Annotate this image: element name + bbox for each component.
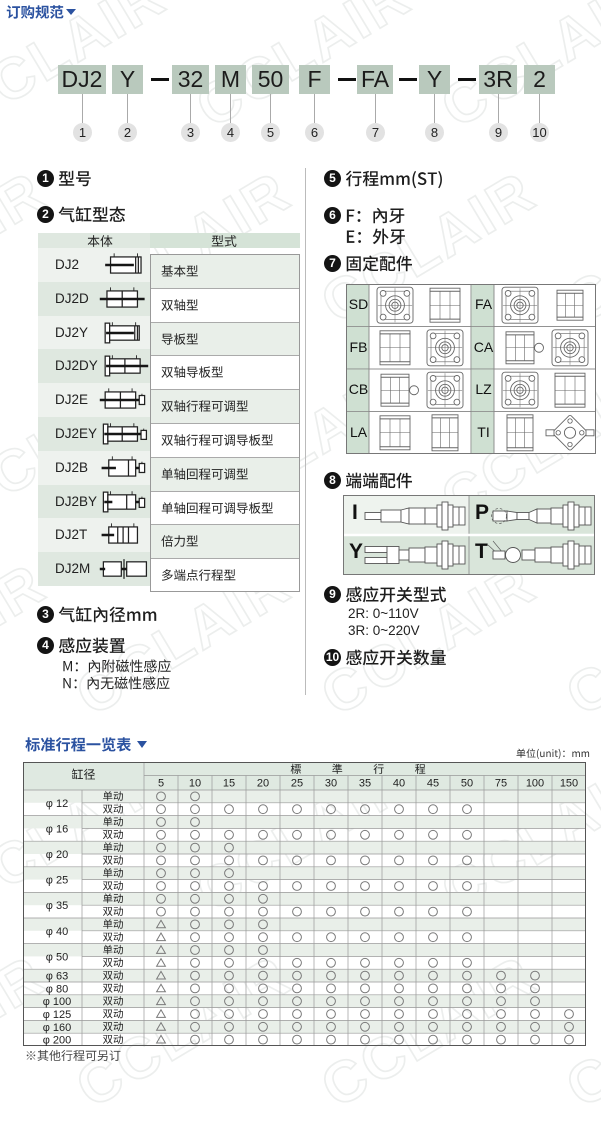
svg-text:φ 100: φ 100 — [43, 996, 72, 1008]
svg-text:φ 50: φ 50 — [46, 951, 68, 963]
svg-text:30: 30 — [325, 778, 337, 790]
svg-text:φ 80: φ 80 — [46, 983, 68, 995]
svg-text:φ 125: φ 125 — [43, 1009, 72, 1021]
svg-text:15: 15 — [223, 778, 235, 790]
svg-text:φ 20: φ 20 — [46, 849, 68, 861]
svg-text:φ 160: φ 160 — [43, 1022, 72, 1034]
svg-text:35: 35 — [359, 778, 371, 790]
svg-text:45: 45 — [427, 778, 439, 790]
svg-text:100: 100 — [526, 778, 544, 790]
svg-text:50: 50 — [461, 778, 473, 790]
svg-text:φ 16: φ 16 — [46, 823, 68, 835]
svg-text:40: 40 — [393, 778, 405, 790]
svg-text:φ 40: φ 40 — [46, 926, 68, 938]
svg-text:φ 12: φ 12 — [46, 798, 68, 810]
svg-text:25: 25 — [291, 778, 303, 790]
svg-text:φ 35: φ 35 — [46, 900, 68, 912]
svg-text:10: 10 — [189, 778, 201, 790]
svg-text:φ 200: φ 200 — [43, 1035, 72, 1046]
svg-text:φ 63: φ 63 — [46, 971, 68, 983]
svg-text:75: 75 — [495, 778, 507, 790]
svg-text:φ 25: φ 25 — [46, 875, 68, 887]
svg-text:20: 20 — [257, 778, 269, 790]
svg-text:150: 150 — [560, 778, 578, 790]
svg-text:5: 5 — [158, 778, 164, 790]
